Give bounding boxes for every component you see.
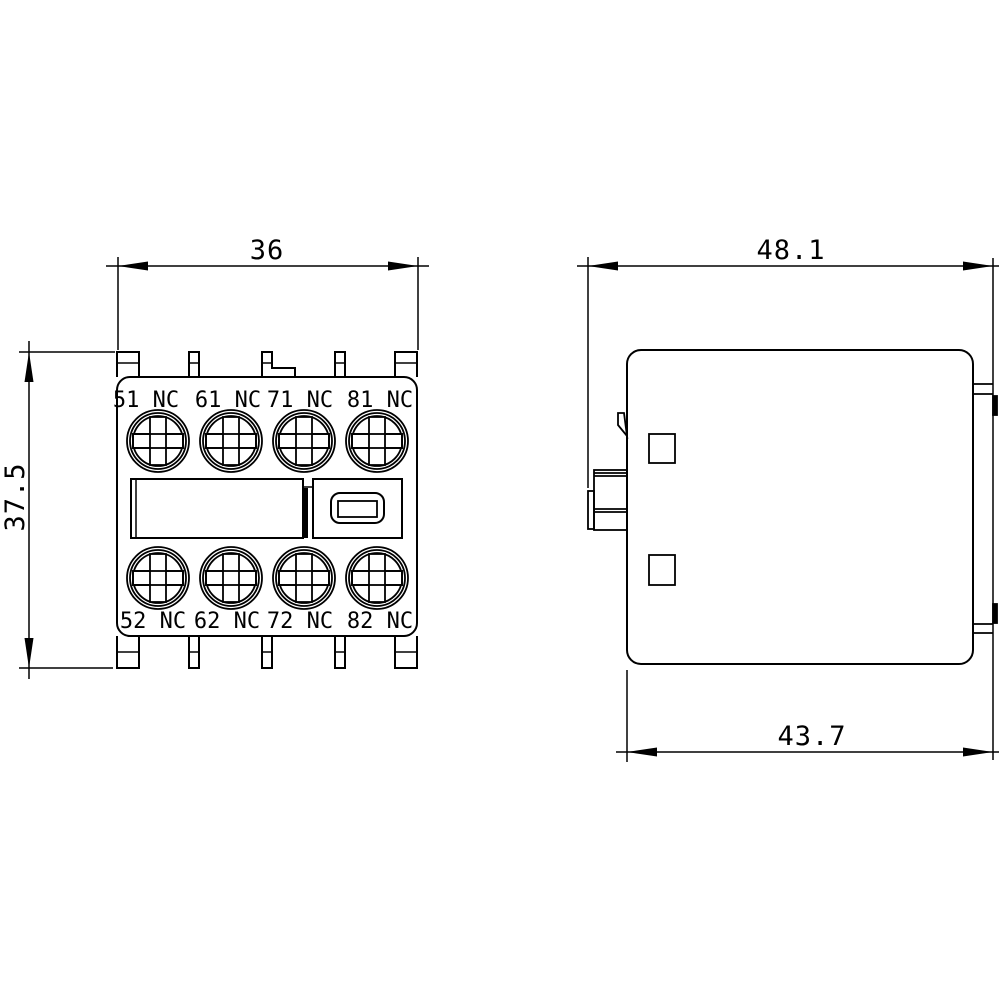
dim-375-arrow-top bbox=[25, 352, 34, 382]
dim-side-total: 48.1 bbox=[577, 235, 999, 488]
terminal-label-62nc: 62 NC bbox=[194, 609, 260, 634]
screw-72 bbox=[273, 547, 335, 609]
side-latch-hook bbox=[618, 413, 627, 436]
screw-62 bbox=[200, 547, 262, 609]
dim-front-height: 37.5 bbox=[0, 341, 115, 679]
side-connector-block bbox=[588, 470, 627, 530]
front-top-tabs bbox=[117, 352, 417, 377]
dimensional-drawing: 51 NC 61 NC 71 NC 81 NC 52 NC 62 NC 72 N… bbox=[0, 0, 1000, 1000]
terminal-label-52nc: 52 NC bbox=[120, 609, 186, 634]
side-square-lower bbox=[649, 555, 675, 585]
dim-front-height-value: 37.5 bbox=[0, 462, 31, 531]
side-view bbox=[588, 258, 997, 760]
dim-36-arrow-left bbox=[118, 262, 148, 271]
front-label-area bbox=[131, 479, 402, 538]
dim-437-arrow-right bbox=[963, 748, 993, 757]
dim-side-body: 43.7 bbox=[616, 670, 999, 762]
screw-61 bbox=[200, 410, 262, 472]
dim-side-body-value: 43.7 bbox=[777, 721, 846, 752]
front-view: 51 NC 61 NC 71 NC 81 NC 52 NC 62 NC 72 N… bbox=[113, 352, 417, 668]
side-rear-hooks bbox=[973, 258, 997, 760]
dim-side-total-value: 48.1 bbox=[756, 235, 825, 266]
dim-375-arrow-bottom bbox=[25, 638, 34, 668]
dim-front-width-value: 36 bbox=[250, 235, 285, 266]
terminal-label-61nc: 61 NC bbox=[195, 388, 261, 413]
dim-36-arrow-right bbox=[388, 262, 418, 271]
terminal-label-82nc: 82 NC bbox=[347, 609, 413, 634]
side-square-upper bbox=[649, 434, 675, 463]
screw-81 bbox=[346, 410, 408, 472]
terminal-label-72nc: 72 NC bbox=[267, 609, 333, 634]
screw-82 bbox=[346, 547, 408, 609]
terminal-label-51nc: 51 NC bbox=[113, 388, 179, 413]
screw-51 bbox=[127, 410, 189, 472]
drawing-svg: 51 NC 61 NC 71 NC 81 NC 52 NC 62 NC 72 N… bbox=[0, 0, 1000, 1000]
side-body-outline bbox=[627, 350, 973, 664]
screw-71 bbox=[273, 410, 335, 472]
screw-52 bbox=[127, 547, 189, 609]
dim-481-arrow-left bbox=[588, 262, 618, 271]
dim-481-arrow-right bbox=[963, 262, 993, 271]
front-bottom-tabs bbox=[117, 636, 417, 668]
front-actuator-window bbox=[331, 493, 384, 523]
terminal-label-81nc: 81 NC bbox=[347, 388, 413, 413]
dim-front-width: 36 bbox=[106, 235, 429, 350]
terminal-label-71nc: 71 NC bbox=[267, 388, 333, 413]
dim-437-arrow-left bbox=[627, 748, 657, 757]
